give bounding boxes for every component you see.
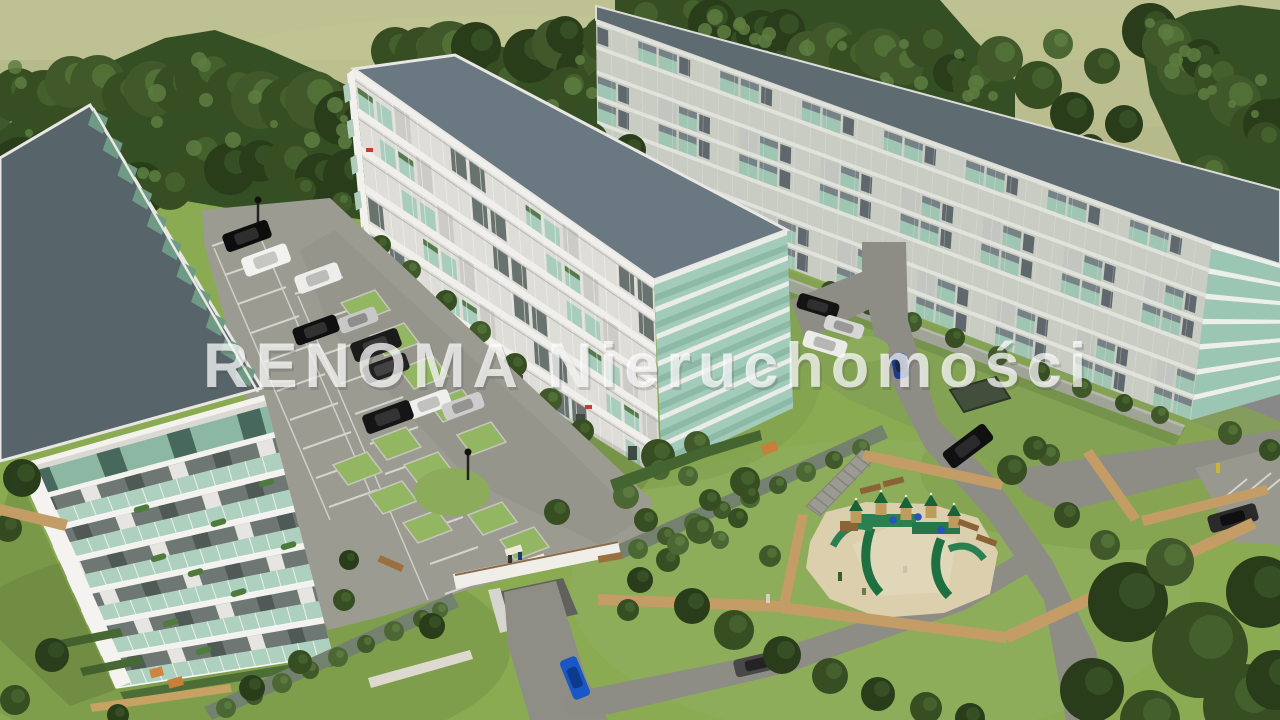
svg-text:RENOMA Nieruchomości: RENOMA Nieruchomości (203, 331, 1093, 401)
